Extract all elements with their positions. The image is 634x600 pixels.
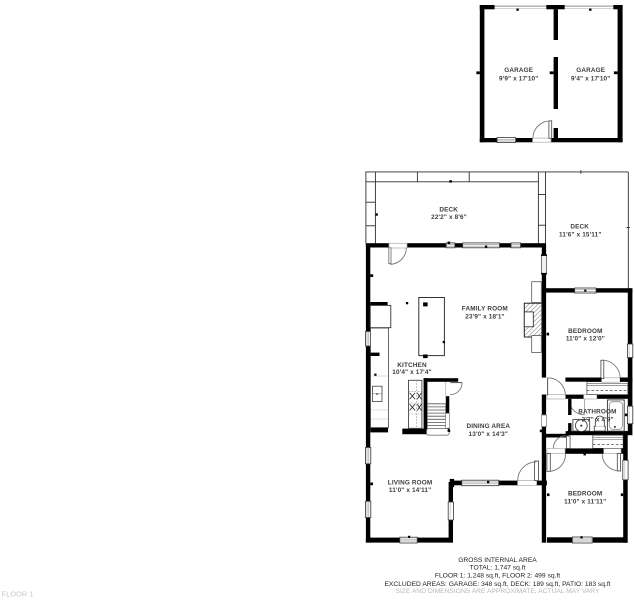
svg-text:GARAGE: GARAGE xyxy=(504,67,534,74)
svg-text:FLOOR 1: FLOOR 1 xyxy=(2,590,34,599)
svg-text:22'2" x 8'6": 22'2" x 8'6" xyxy=(431,214,467,221)
svg-text:23'9" x 18'1": 23'9" x 18'1" xyxy=(465,314,504,321)
svg-text:11'6" x 15'11": 11'6" x 15'11" xyxy=(559,232,601,239)
svg-text:KITCHEN: KITCHEN xyxy=(397,362,427,369)
svg-text:DECK: DECK xyxy=(439,206,458,213)
svg-text:GROSS INTERNAL AREA: GROSS INTERNAL AREA xyxy=(458,557,537,564)
svg-text:GARAGE: GARAGE xyxy=(576,67,606,74)
svg-text:DECK: DECK xyxy=(570,224,589,231)
svg-text:SIZE AND DIMENSIONS ARE APPROX: SIZE AND DIMENSIONS ARE APPROXIMATE, ACT… xyxy=(396,588,600,595)
svg-text:9'9" x 17'10": 9'9" x 17'10" xyxy=(499,76,538,83)
svg-text:10'4" x 17'4": 10'4" x 17'4" xyxy=(392,369,431,376)
svg-text:11'0" x 11'11": 11'0" x 11'11" xyxy=(564,498,606,505)
svg-text:11'0" x 12'0": 11'0" x 12'0" xyxy=(566,336,605,343)
svg-text:9'4" x 17'10": 9'4" x 17'10" xyxy=(571,76,610,83)
svg-text:FLOOR 1: 1,248 sq.ft, FLOOR 2:: FLOOR 1: 1,248 sq.ft, FLOOR 2: 499 sq.ft xyxy=(435,573,560,580)
svg-text:13'0" x 14'3": 13'0" x 14'3" xyxy=(469,431,508,438)
svg-text:BEDROOM: BEDROOM xyxy=(568,490,602,497)
svg-text:EXCLUDED AREAS: GARAGE: 348 sq: EXCLUDED AREAS: GARAGE: 348 sq.ft, DECK:… xyxy=(384,581,610,588)
svg-text:BEDROOM: BEDROOM xyxy=(568,328,602,335)
svg-text:LIVING ROOM: LIVING ROOM xyxy=(388,479,433,486)
svg-text:DINING AREA: DINING AREA xyxy=(466,423,510,430)
svg-text:FAMILY ROOM: FAMILY ROOM xyxy=(462,305,508,312)
svg-text:BATHROOM: BATHROOM xyxy=(578,408,616,415)
svg-text:11'0" x 14'11": 11'0" x 14'11" xyxy=(389,487,431,494)
svg-text:2'7" x 4'9": 2'7" x 4'9" xyxy=(582,417,614,424)
svg-text:TOTAL: 1,747 sq.ft: TOTAL: 1,747 sq.ft xyxy=(470,565,526,572)
